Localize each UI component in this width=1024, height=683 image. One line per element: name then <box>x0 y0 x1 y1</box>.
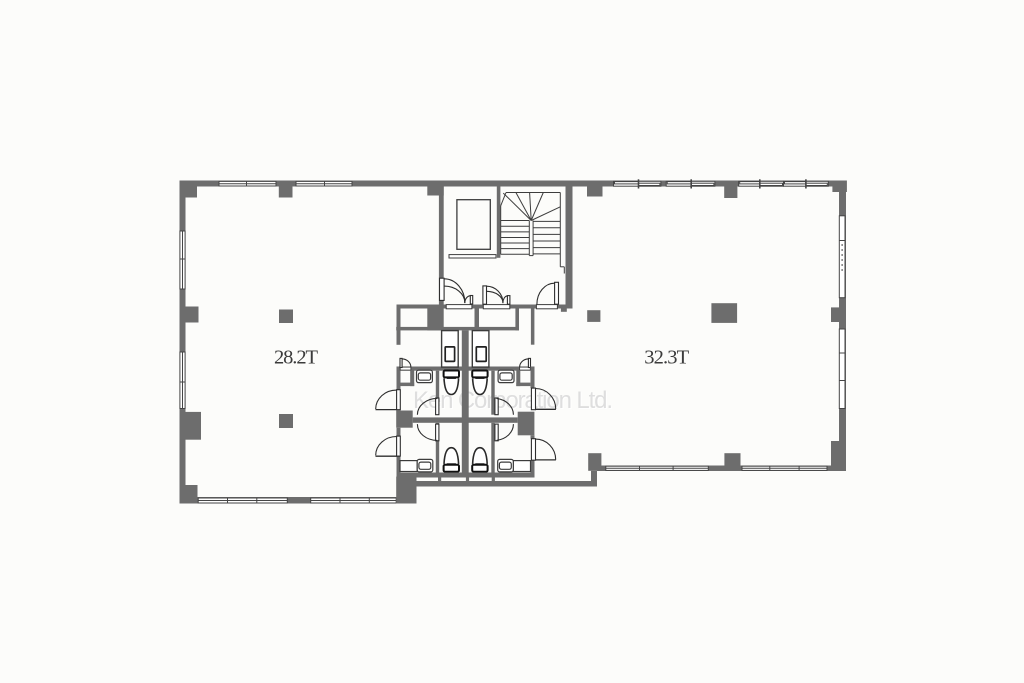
svg-text:32.3T: 32.3T <box>644 347 689 369</box>
svg-text:28.2T: 28.2T <box>274 347 318 369</box>
